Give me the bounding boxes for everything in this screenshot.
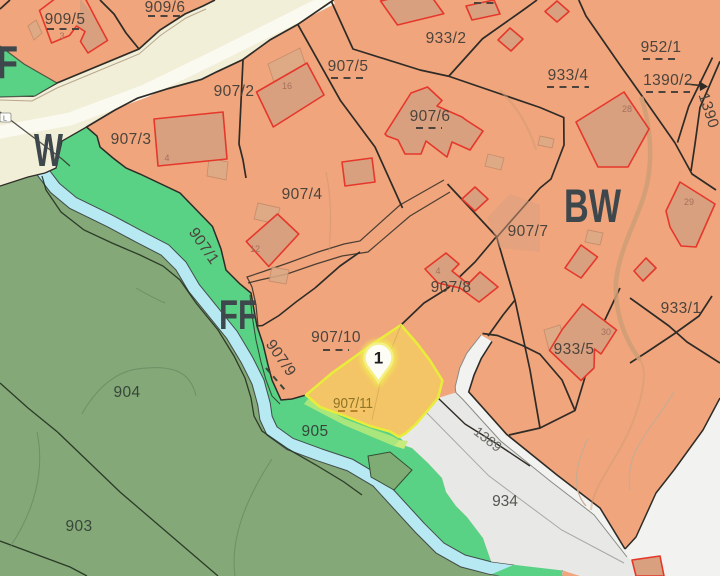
svg-text:907/10: 907/10	[311, 329, 361, 346]
svg-text:1: 1	[374, 349, 383, 368]
svg-text:28: 28	[622, 104, 632, 114]
svg-text:933/4: 933/4	[548, 67, 589, 84]
svg-text:12: 12	[250, 244, 260, 254]
svg-text:907/5: 907/5	[328, 58, 369, 75]
svg-text:903: 903	[65, 518, 92, 535]
svg-text:907/6: 907/6	[410, 108, 451, 125]
svg-text:952/1: 952/1	[641, 39, 682, 56]
svg-text:FF: FF	[219, 291, 257, 338]
svg-text:4: 4	[164, 153, 169, 163]
svg-text:L: L	[3, 116, 7, 123]
svg-text:907/4: 907/4	[282, 186, 323, 203]
svg-text:934: 934	[492, 493, 518, 510]
svg-text:907/11: 907/11	[333, 395, 373, 412]
svg-text:907/8: 907/8	[431, 279, 472, 296]
svg-text:933/5: 933/5	[554, 341, 595, 358]
svg-text:29: 29	[684, 197, 694, 207]
svg-text:4: 4	[435, 266, 440, 276]
svg-text:907/2: 907/2	[214, 83, 255, 100]
svg-text:BW: BW	[564, 179, 621, 232]
svg-text:30: 30	[601, 327, 611, 337]
svg-text:933/2: 933/2	[426, 30, 467, 47]
svg-text:1390/2: 1390/2	[643, 72, 693, 89]
svg-text:907/7: 907/7	[508, 223, 549, 240]
svg-text:933/1: 933/1	[661, 300, 702, 317]
svg-text:W: W	[34, 124, 63, 176]
svg-text:F: F	[0, 36, 18, 88]
svg-text:3: 3	[59, 31, 64, 41]
svg-text:904: 904	[113, 384, 140, 401]
svg-text:909/5: 909/5	[45, 11, 86, 28]
svg-text:905: 905	[301, 423, 328, 440]
svg-text:907/3: 907/3	[111, 131, 152, 148]
svg-text:16: 16	[282, 81, 292, 91]
svg-text:909/6: 909/6	[145, 0, 186, 16]
